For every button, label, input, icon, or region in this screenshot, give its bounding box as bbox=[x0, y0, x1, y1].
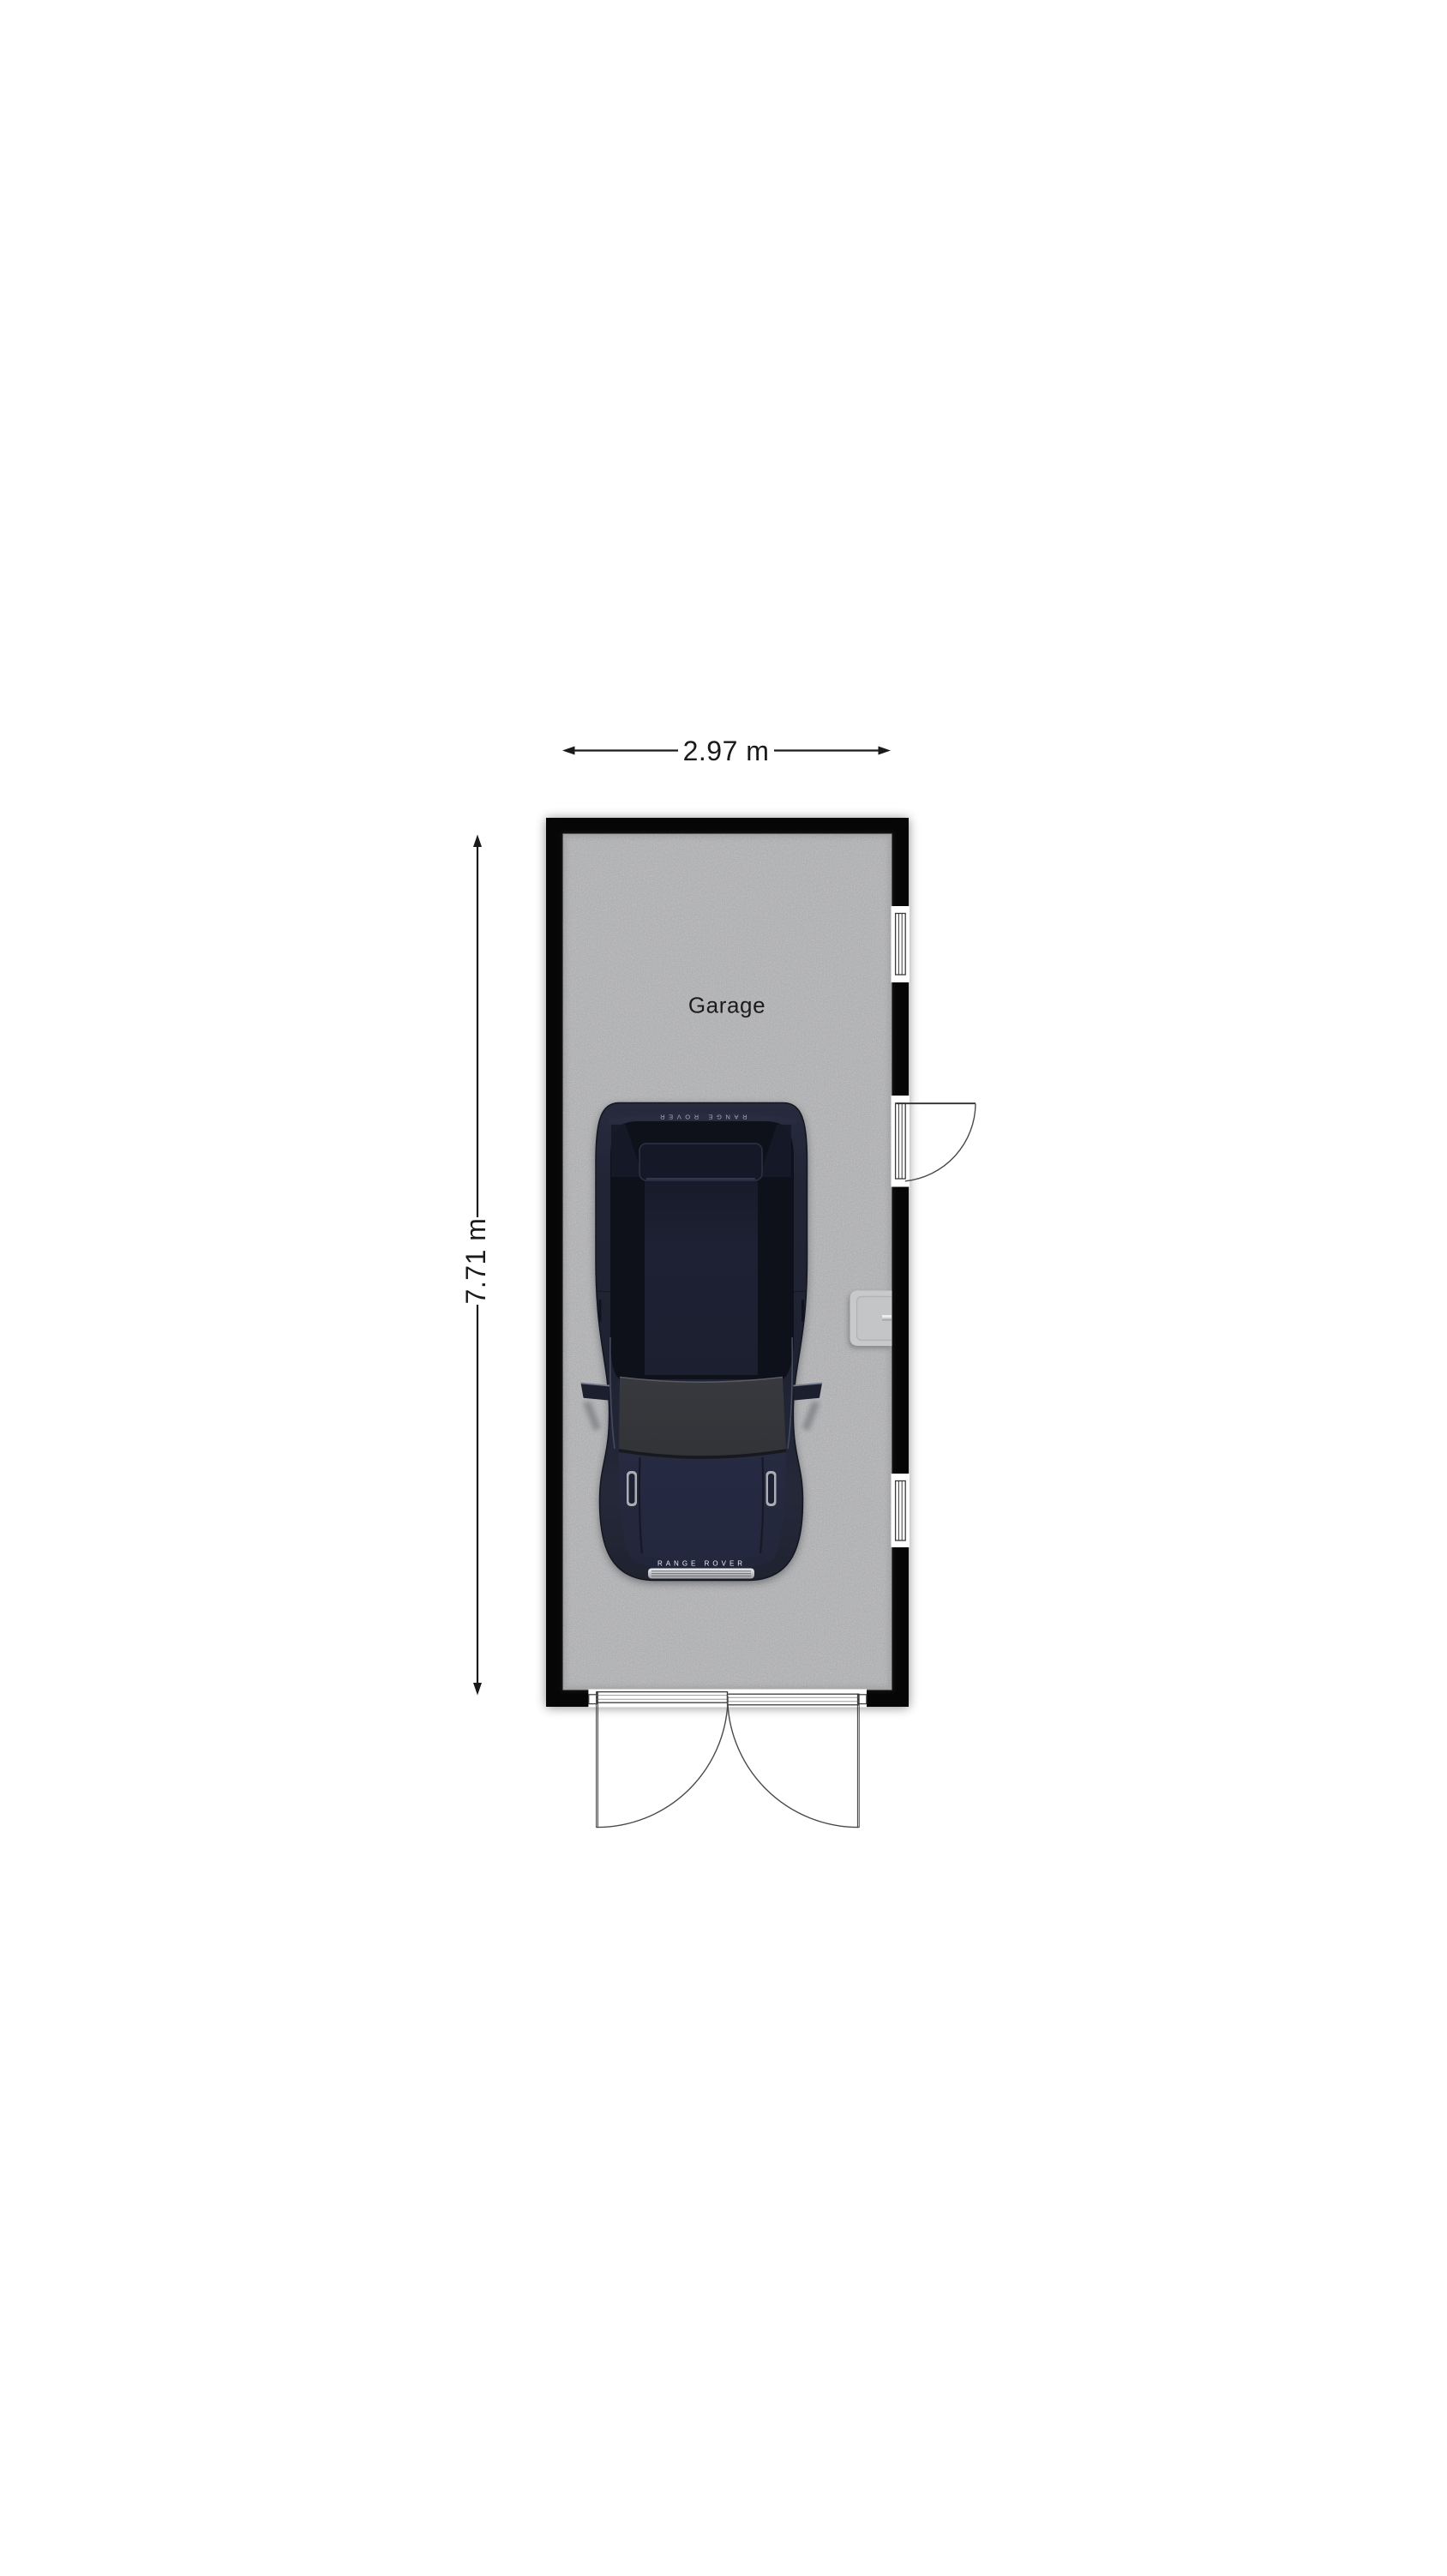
svg-text:RANGE ROVER: RANGE ROVER bbox=[657, 1560, 746, 1568]
svg-text:RANGE ROVER: RANGE ROVER bbox=[656, 1114, 747, 1121]
svg-text:2.97 m: 2.97 m bbox=[683, 736, 770, 766]
svg-text:7.71 m: 7.71 m bbox=[460, 1218, 491, 1305]
svg-text:Garage: Garage bbox=[688, 993, 766, 1018]
